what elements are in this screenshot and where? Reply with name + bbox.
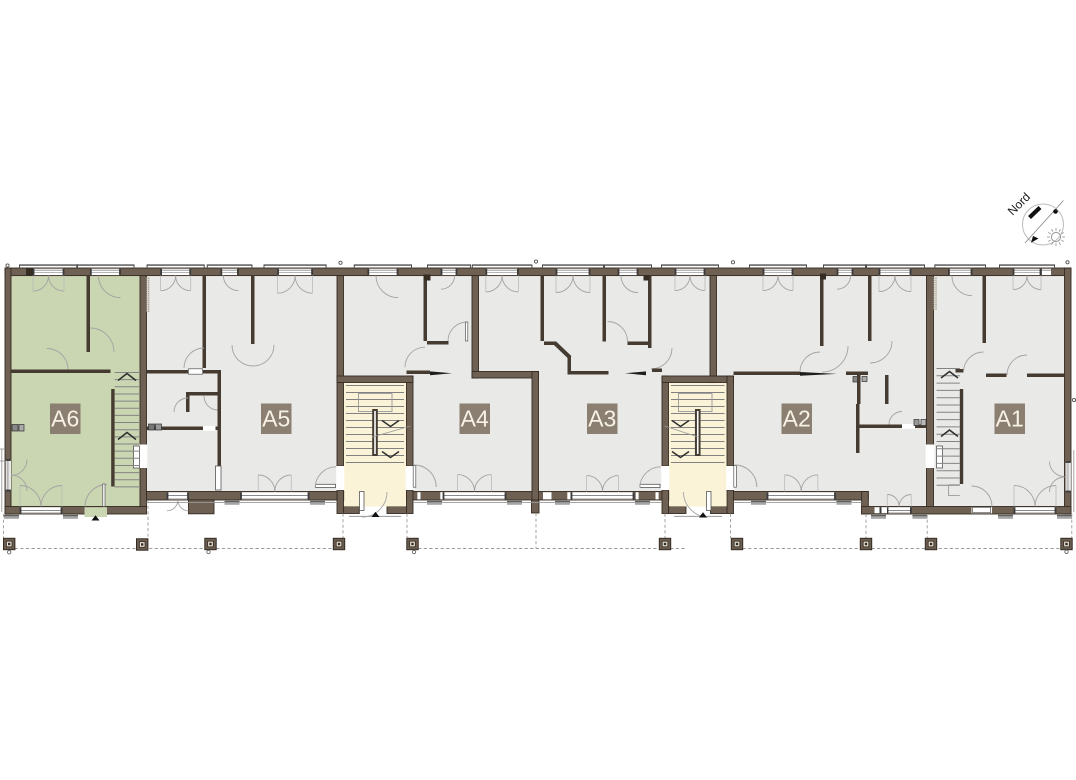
svg-text:A1: A1	[996, 406, 1024, 432]
svg-text:A2: A2	[783, 406, 811, 432]
svg-text:A3: A3	[588, 406, 616, 432]
svg-text:A4: A4	[461, 406, 489, 432]
svg-text:A6: A6	[51, 406, 79, 432]
svg-text:A5: A5	[262, 406, 290, 432]
